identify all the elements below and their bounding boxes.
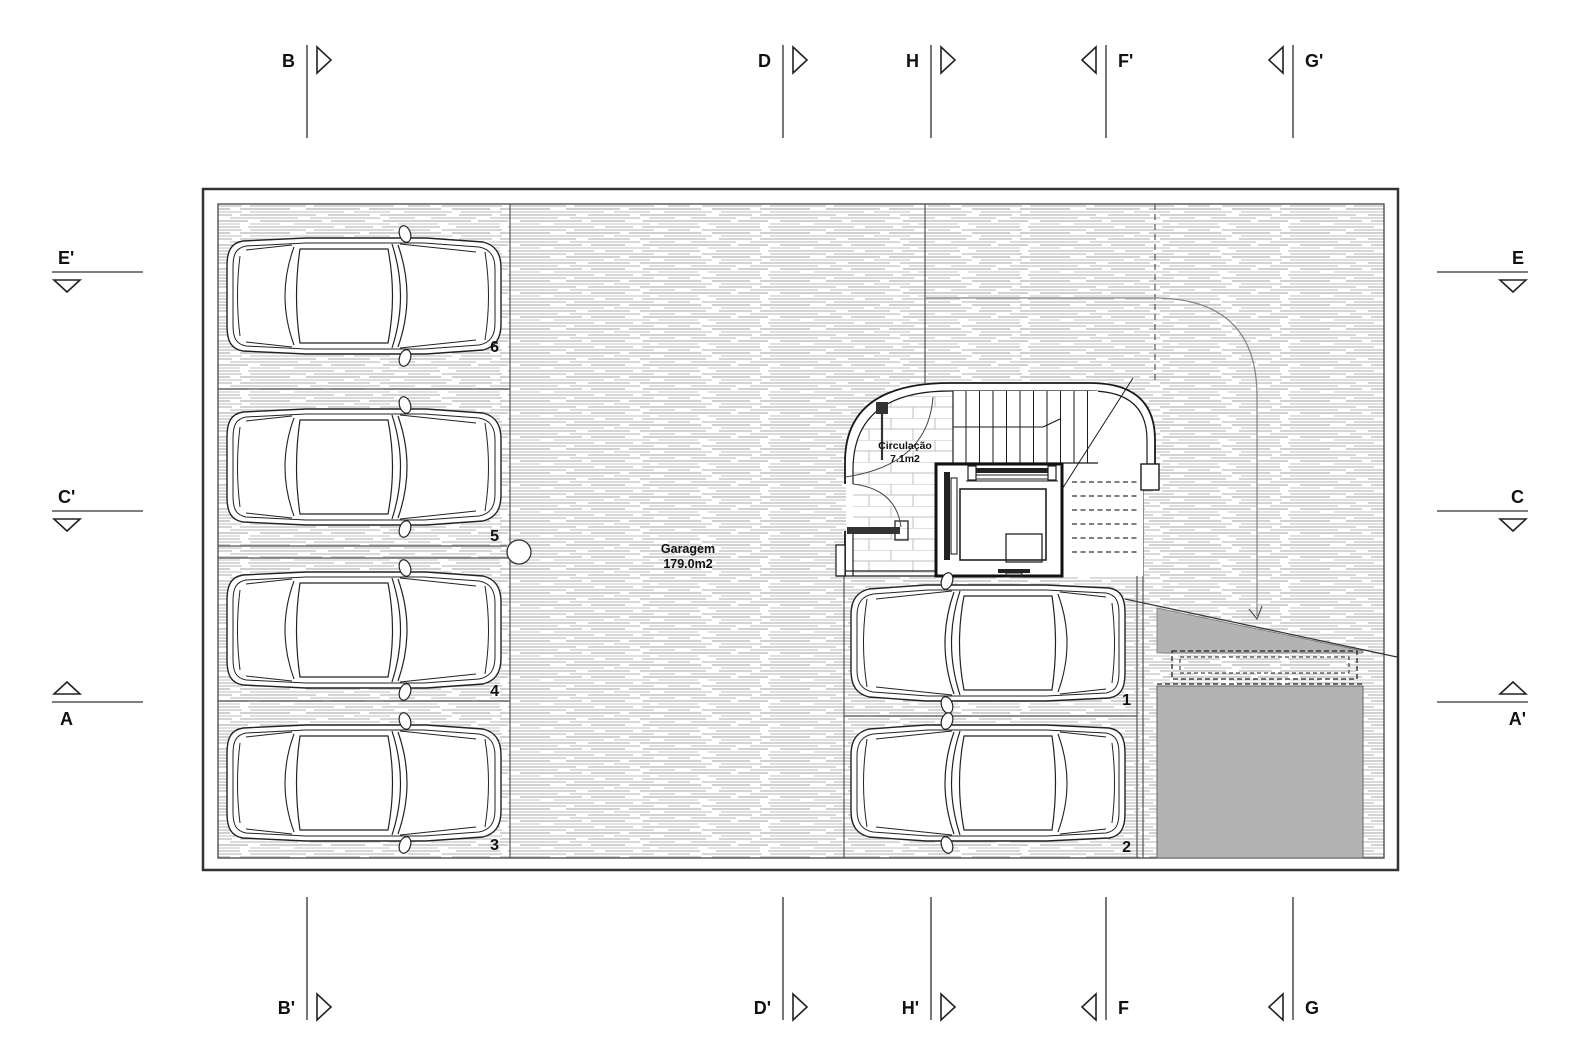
elevator-door-rail bbox=[976, 468, 1048, 473]
elevator-door-bracket bbox=[1048, 466, 1056, 480]
svg-text:F: F bbox=[1118, 998, 1129, 1018]
section-arrow-right-icon bbox=[793, 47, 807, 73]
car-icon bbox=[227, 395, 501, 539]
parking-number-3: 3 bbox=[490, 837, 499, 854]
section-marker-top-d: D bbox=[758, 45, 807, 138]
section-marker-left-e-prime: E' bbox=[52, 248, 143, 292]
parking-number-2: 2 bbox=[1122, 839, 1131, 856]
room-area-circulacao: 7.1m2 bbox=[890, 453, 920, 465]
floor-plan-svg: Garagem 179.0m2 Circulação 7.1m2 1 2 3 4… bbox=[0, 0, 1572, 1058]
svg-text:D: D bbox=[758, 51, 771, 71]
room-label-circulacao: Circulação bbox=[878, 440, 932, 452]
section-markers-bottom: B' D' H' F G bbox=[278, 897, 1319, 1020]
svg-text:H: H bbox=[906, 51, 919, 71]
section-marker-right-e: E bbox=[1437, 248, 1528, 292]
car-icon bbox=[227, 711, 501, 855]
door-hinge-block bbox=[876, 402, 888, 414]
stair-core bbox=[836, 378, 1159, 577]
ramp-area bbox=[1157, 608, 1363, 858]
car-icon bbox=[227, 558, 501, 702]
section-marker-top-g-prime: G' bbox=[1269, 45, 1323, 138]
svg-text:H': H' bbox=[902, 998, 919, 1018]
section-arrow-right-icon bbox=[793, 994, 807, 1020]
parking-number-4: 4 bbox=[490, 683, 499, 700]
parking-number-5: 5 bbox=[490, 528, 499, 545]
svg-text:C: C bbox=[1511, 487, 1524, 507]
svg-text:A: A bbox=[60, 709, 73, 729]
section-markers-top: B D H F' G' bbox=[282, 45, 1323, 138]
section-markers-left: E' C' A bbox=[52, 248, 143, 729]
elevator-door-bracket bbox=[968, 466, 976, 480]
elevator-guide-rail bbox=[944, 472, 950, 560]
section-arrow-up-icon bbox=[1500, 682, 1526, 694]
floor-plan-sheet: Garagem 179.0m2 Circulação 7.1m2 1 2 3 4… bbox=[0, 0, 1572, 1058]
section-arrow-down-icon bbox=[1500, 280, 1526, 292]
section-arrow-left-icon bbox=[1082, 994, 1096, 1020]
car-icon bbox=[851, 571, 1125, 715]
section-arrow-left-icon bbox=[1269, 47, 1283, 73]
section-marker-bottom-h-prime: H' bbox=[902, 897, 955, 1020]
svg-text:A': A' bbox=[1509, 709, 1526, 729]
parking-number-6: 6 bbox=[490, 339, 499, 356]
svg-text:D': D' bbox=[754, 998, 771, 1018]
section-arrow-right-icon bbox=[317, 47, 331, 73]
section-marker-top-f-prime: F' bbox=[1082, 45, 1133, 138]
section-marker-top-h: H bbox=[906, 45, 955, 138]
elevator-buffer bbox=[998, 569, 1030, 573]
section-arrow-down-icon bbox=[54, 280, 80, 292]
section-arrow-down-icon bbox=[54, 519, 80, 531]
section-arrow-down-icon bbox=[1500, 519, 1526, 531]
car-icon bbox=[851, 711, 1125, 855]
section-arrow-left-icon bbox=[1269, 994, 1283, 1020]
svg-text:B: B bbox=[282, 51, 295, 71]
room-label-garagem: Garagem bbox=[661, 542, 715, 556]
section-marker-top-b: B bbox=[282, 45, 331, 138]
section-marker-bottom-b-prime: B' bbox=[278, 897, 331, 1020]
section-marker-left-a: A bbox=[52, 682, 143, 729]
elevator bbox=[936, 464, 1062, 577]
svg-text:E': E' bbox=[58, 248, 74, 268]
car-icon bbox=[227, 224, 501, 368]
svg-text:G: G bbox=[1305, 998, 1319, 1018]
section-marker-right-c: C bbox=[1437, 487, 1528, 531]
section-arrow-right-icon bbox=[317, 994, 331, 1020]
svg-text:C': C' bbox=[58, 487, 75, 507]
column-circle bbox=[507, 540, 531, 564]
section-arrow-right-icon bbox=[941, 994, 955, 1020]
wall-step bbox=[836, 545, 845, 576]
section-arrow-up-icon bbox=[54, 682, 80, 694]
section-markers-right: E C A' bbox=[1437, 248, 1528, 729]
section-arrow-left-icon bbox=[1082, 47, 1096, 73]
svg-text:F': F' bbox=[1118, 51, 1133, 71]
svg-text:B': B' bbox=[278, 998, 295, 1018]
section-marker-bottom-d-prime: D' bbox=[754, 897, 807, 1020]
section-marker-right-a-prime: A' bbox=[1437, 682, 1528, 729]
wall-pier bbox=[1141, 464, 1159, 490]
svg-text:G': G' bbox=[1305, 51, 1323, 71]
section-arrow-right-icon bbox=[941, 47, 955, 73]
room-area-garagem: 179.0m2 bbox=[663, 557, 712, 571]
ramp-poche bbox=[1157, 686, 1363, 858]
section-marker-bottom-g: G bbox=[1269, 897, 1319, 1020]
svg-text:E: E bbox=[1512, 248, 1524, 268]
section-marker-left-c-prime: C' bbox=[52, 487, 143, 531]
door-leaf bbox=[847, 527, 900, 534]
parking-number-1: 1 bbox=[1122, 692, 1131, 709]
section-marker-bottom-f: F bbox=[1082, 897, 1129, 1020]
